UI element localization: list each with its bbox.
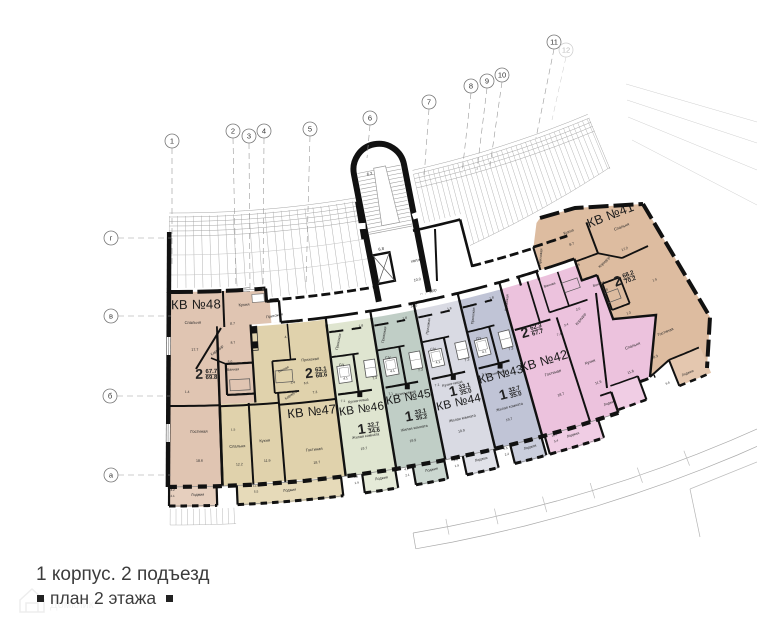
- svg-text:план 2 этажа: план 2 этажа: [50, 588, 156, 608]
- svg-text:7.1: 7.1: [340, 399, 345, 404]
- svg-text:1.8: 1.8: [358, 323, 363, 328]
- svg-text:12: 12: [562, 46, 570, 55]
- svg-text:18.6: 18.6: [196, 459, 203, 463]
- svg-text:С/у: С/у: [339, 363, 345, 368]
- svg-text:69.8: 69.8: [206, 375, 218, 381]
- svg-text:6: 6: [368, 114, 372, 123]
- svg-text:4: 4: [262, 127, 266, 136]
- svg-text:Кухня: Кухня: [259, 438, 270, 444]
- svg-text:11: 11: [550, 38, 558, 47]
- svg-text:4.1: 4.1: [284, 335, 289, 339]
- svg-text:Гостиная: Гостиная: [190, 429, 207, 434]
- svg-text:9: 9: [485, 77, 489, 86]
- svg-text:2: 2: [231, 127, 235, 136]
- svg-text:3: 3: [247, 132, 251, 141]
- svg-text:7: 7: [427, 98, 431, 107]
- svg-text:1.9: 1.9: [354, 481, 359, 486]
- svg-text:4.1: 4.1: [343, 376, 348, 381]
- svg-text:Лоджия: Лоджия: [191, 493, 204, 497]
- svg-text:Кухня: Кухня: [238, 302, 249, 308]
- svg-text:1: 1: [170, 137, 174, 146]
- svg-text:КВ №48: КВ №48: [171, 296, 221, 312]
- svg-text:7.3: 7.3: [312, 390, 317, 395]
- svg-text:2.1: 2.1: [170, 494, 175, 498]
- svg-text:8: 8: [469, 82, 473, 91]
- svg-text:1.4: 1.4: [185, 390, 190, 394]
- svg-text:г: г: [110, 234, 113, 243]
- svg-text:6.6: 6.6: [304, 381, 309, 385]
- svg-text:б: б: [108, 392, 112, 401]
- svg-text:в: в: [109, 312, 113, 321]
- svg-text:7.3: 7.3: [372, 376, 377, 381]
- svg-text:17.7: 17.7: [191, 348, 198, 352]
- svg-text:4.1: 4.1: [390, 369, 395, 374]
- svg-text:1 корпус. 2 подъезд: 1 корпус. 2 подъезд: [36, 564, 210, 585]
- svg-text:5: 5: [308, 125, 312, 134]
- svg-text:18.7: 18.7: [313, 460, 320, 465]
- svg-text:10: 10: [498, 71, 506, 80]
- svg-text:Ванная: Ванная: [227, 367, 240, 372]
- svg-text:5.5: 5.5: [254, 489, 259, 493]
- svg-text:12.2: 12.2: [236, 462, 243, 466]
- svg-text:Спальня: Спальня: [185, 320, 202, 325]
- svg-text:8.7: 8.7: [230, 321, 235, 325]
- svg-text:1.5: 1.5: [231, 428, 236, 432]
- svg-text:8.7: 8.7: [230, 340, 235, 344]
- svg-text:11.9: 11.9: [264, 459, 271, 463]
- svg-text:Спальня: Спальня: [229, 443, 245, 449]
- svg-text:3.4: 3.4: [290, 380, 295, 384]
- svg-text:5.0: 5.0: [228, 360, 233, 364]
- svg-text:2: 2: [195, 366, 203, 382]
